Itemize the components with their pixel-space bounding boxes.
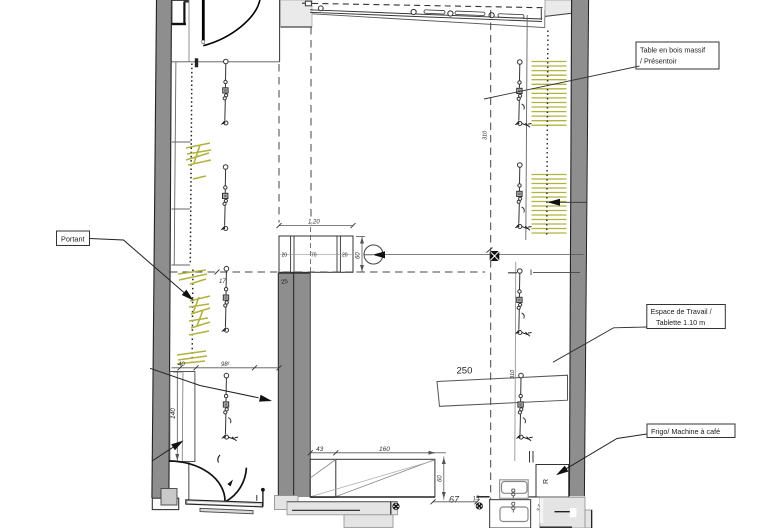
svg-text:60: 60 <box>437 475 443 482</box>
svg-text:98¹: 98¹ <box>221 362 230 368</box>
svg-text:1,20: 1,20 <box>308 220 320 226</box>
svg-text:R: R <box>543 479 550 484</box>
svg-text:250: 250 <box>457 366 473 377</box>
svg-text:17: 17 <box>219 279 226 285</box>
svg-text:20: 20 <box>282 253 288 259</box>
svg-text:/ Présentoir: / Présentoir <box>640 57 677 66</box>
svg-text:Table en bois massif: Table en bois massif <box>640 46 705 55</box>
svg-text:310: 310 <box>510 369 516 379</box>
svg-text:Espace de Travail /: Espace de Travail / <box>651 307 712 316</box>
svg-text:Tablette 1.10 m: Tablette 1.10 m <box>656 318 705 327</box>
svg-text:67: 67 <box>449 495 460 505</box>
svg-text:70: 70 <box>311 253 317 259</box>
svg-text:Portant: Portant <box>61 235 85 244</box>
svg-text:60: 60 <box>356 252 362 259</box>
svg-text:160: 160 <box>379 446 390 453</box>
svg-text:Frigo/ Machine à café: Frigo/ Machine à café <box>651 427 720 436</box>
svg-text:20: 20 <box>342 253 348 259</box>
svg-text:310: 310 <box>483 130 489 140</box>
svg-text:43: 43 <box>316 446 324 453</box>
svg-text:140: 140 <box>170 408 177 419</box>
svg-text:40: 40 <box>178 362 185 368</box>
